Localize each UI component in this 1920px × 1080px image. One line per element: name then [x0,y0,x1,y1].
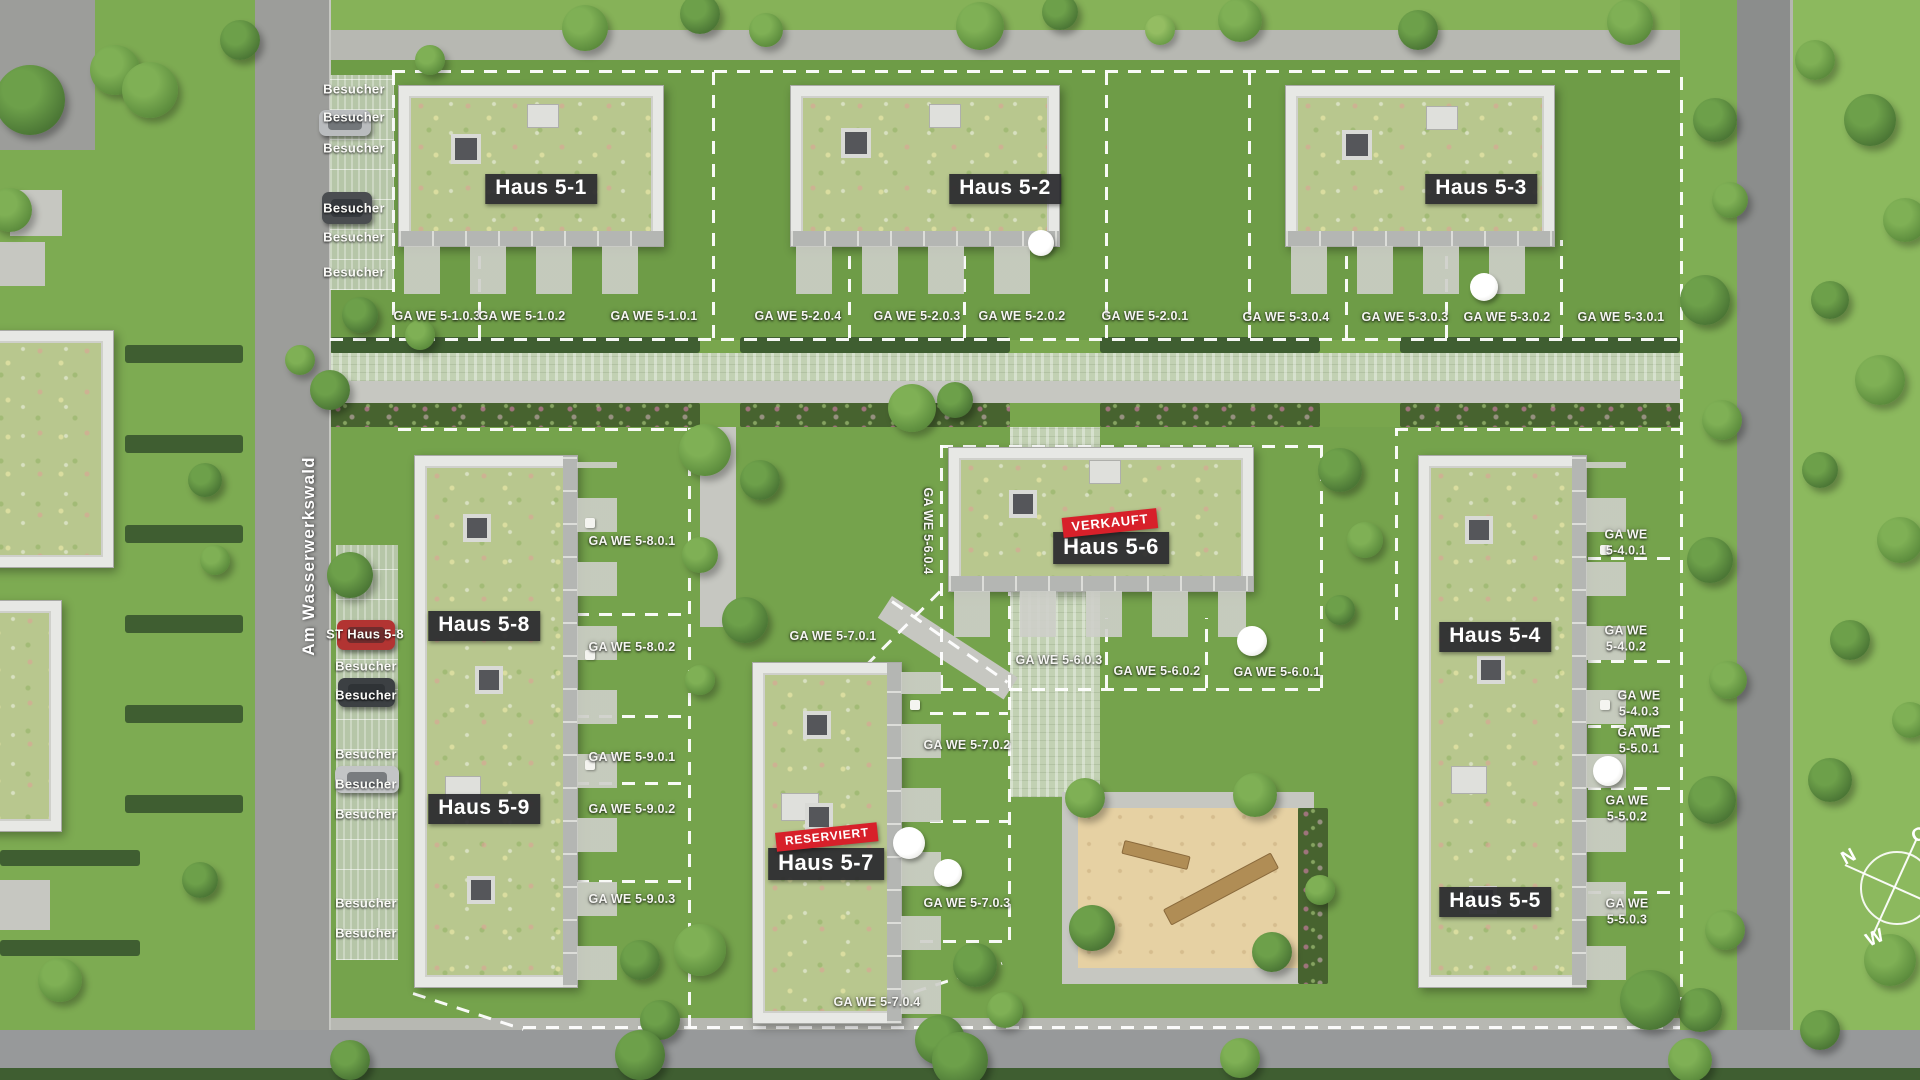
plot-label: GA WE 5-2.0.1 [1102,309,1189,325]
facade [563,456,577,987]
tree [1712,182,1748,218]
plot-label: GA WE 5-9.0.2 [589,802,676,818]
plot-label: GA WE 5-7.0.2 [924,738,1011,754]
top-sidewalk [330,30,1690,60]
tree [722,597,768,643]
visitor-parking-label: Besucher [323,110,385,125]
visitor-parking-label: Besucher [323,141,385,156]
visitor-parking-label: Besucher [335,688,397,703]
visitor-parking-label: Besucher [335,747,397,762]
roof-access [929,104,961,128]
mid-flowerbed [1400,403,1680,427]
patio-table [910,700,920,710]
visitor-parking-top [330,75,394,290]
green-roof [801,96,1049,236]
tree [562,5,608,51]
visitor-parking-label: Besucher [335,807,397,822]
facade [1572,456,1586,987]
playground-path [1062,792,1078,984]
skylight [1009,490,1037,518]
umbrella [1593,756,1623,786]
terraces-5-6 [954,591,1246,637]
tree [1705,910,1745,950]
tree [1844,94,1896,146]
tree [1693,98,1737,142]
tree [682,537,718,573]
building-haus-5-3[interactable] [1285,85,1555,247]
plot-label: GA WE 5-5.0.2 [1606,793,1649,824]
site-plan: GA WE 5-1.0.3GA WE 5-1.0.2GA WE 5-1.0.1G… [0,0,1920,1080]
roof-access [1089,460,1121,484]
roof-access [527,104,559,128]
plot-boundary [1680,70,1683,1010]
compass-n: N [1838,845,1860,870]
terraces-5-1 [404,246,656,294]
tree [1702,400,1742,440]
tree [1668,1038,1712,1080]
plot-boundary [523,1026,1680,1029]
facade [1286,231,1554,246]
plot-label: GA WE 5-9.0.3 [589,892,676,908]
plot-label: GA WE 5-5.0.3 [1606,896,1649,927]
house-badge[interactable]: Haus 5-1 [485,174,597,204]
tree [932,1032,988,1080]
plot-label: GA WE 5-3.0.3 [1362,310,1449,326]
patio-table [585,518,595,528]
plot-label: GA WE 5-6.0.4 [919,488,935,575]
tree [685,665,715,695]
tree [1811,281,1849,319]
compass-o: O [1908,822,1920,847]
tree [1688,776,1736,824]
tree [1620,970,1680,1030]
tree [415,45,445,75]
building-haus-5-2[interactable] [790,85,1060,247]
tree [1687,537,1733,583]
tree [674,924,726,976]
neighbour-hedge [125,525,243,543]
tree [1607,0,1653,45]
plot-label: GA WE 5-3.0.4 [1243,310,1330,326]
visitor-parking-label: Besucher [335,659,397,674]
plot-label: GA WE 5-1.0.1 [611,309,698,325]
compass: N W O [1828,812,1920,962]
neighbour-hedge [125,435,243,453]
tree [1892,702,1920,738]
tree [1233,773,1277,817]
tree [1325,595,1355,625]
neighbour-building [0,600,62,832]
tree [330,1040,370,1080]
green-roof [425,466,567,977]
plot-label: GA WE 5-1.0.2 [479,309,566,325]
tree [182,862,218,898]
plot-label: GA WE 5-5.0.1 [1618,725,1661,756]
street-name: Am Wasserwerkswald [299,456,319,656]
house-badge[interactable]: Haus 5-2 [949,174,1061,204]
mid-flowerbed [1100,403,1320,427]
tree [1680,275,1730,325]
skylight [1342,130,1372,160]
neighbour-building [0,330,114,568]
tree [1800,1010,1840,1050]
tree [1709,661,1747,699]
tree [200,545,230,575]
tree [987,992,1023,1028]
neighbour-patio [0,242,45,286]
mid-paver-road [330,353,1737,381]
tree [285,345,315,375]
plot-boundary [930,820,1008,823]
plot-label: GA WE 5-7.0.4 [834,995,921,1011]
facade [949,576,1253,591]
facade [399,231,663,246]
tree [1808,758,1852,802]
plot-label: GA WE 5-3.0.2 [1464,310,1551,326]
terraces-5-2 [796,246,1052,294]
tree [679,424,731,476]
tree [1398,10,1438,50]
tree [220,20,260,60]
umbrella [934,859,962,887]
tree [615,1030,665,1080]
building-haus-5-1[interactable] [398,85,664,247]
tree [956,2,1004,50]
terraces-5-3 [1291,246,1547,294]
visitor-parking-label: Besucher [335,926,397,941]
plot-label: GA WE 5-3.0.1 [1578,310,1665,326]
top-grass-strip [330,0,1700,30]
neighbour-hedge [0,850,140,866]
visitor-parking-label: Besucher [323,265,385,280]
tree [38,958,82,1002]
house-badge[interactable]: Haus 5-5 [1439,887,1551,917]
plot-label: GA WE 5-2.0.3 [874,309,961,325]
tree [1318,448,1362,492]
plot-boundary [1560,240,1563,338]
plot-label: GA WE 5-4.0.2 [1605,623,1648,654]
visitor-parking-label: Besucher [323,82,385,97]
tree [1795,40,1835,80]
neighbour-hedge [0,940,140,956]
tree [1220,1038,1260,1078]
plot-label: GA WE 5-8.0.2 [589,640,676,656]
plot-label: GA WE 5-6.0.1 [1234,665,1321,681]
plot-label: GA WE 5-6.0.2 [1114,664,1201,680]
umbrella [893,827,925,859]
umbrella [1237,626,1267,656]
right-green-strip [1680,0,1737,1030]
tree [1069,905,1115,951]
plot-label: GA WE 5-2.0.4 [755,309,842,325]
neighbour-patio [0,880,50,930]
plot-boundary [940,445,943,688]
green-roof [1296,96,1544,236]
plot-boundary [1248,70,1251,338]
skylight [451,134,481,164]
tree [953,943,997,987]
plot-label: GA WE 5-4.0.3 [1618,688,1661,719]
plot-boundary [1105,70,1108,338]
roof-access [1451,766,1487,794]
tree [1802,452,1838,488]
skylight [475,666,503,694]
tree [620,940,660,980]
plot-boundary [930,712,1008,715]
tree [1883,198,1920,242]
plot-label: GA WE 5-7.0.3 [924,896,1011,912]
tree [1678,988,1722,1032]
plot-boundary [392,70,1680,73]
tree [888,384,936,432]
tree [1855,355,1905,405]
neighbour-hedge [125,705,243,723]
plot-label: GA WE 5-9.0.1 [589,750,676,766]
compass-w: W [1862,925,1887,952]
st-parking-label: ST Haus 5-8 [326,627,404,642]
tree [188,463,222,497]
plot-boundary [712,70,715,338]
tree [937,382,973,418]
neighbour-hedge [125,795,243,813]
facade [791,231,1059,246]
umbrella [1028,230,1054,256]
right-street [1737,0,1790,1030]
skylight [463,514,491,542]
plot-boundary [398,428,688,431]
house-badge[interactable]: Haus 5-8 [428,611,540,641]
visitor-parking-label: Besucher [335,896,397,911]
plot-boundary [330,338,1680,341]
plot-label: GA WE 5-6.0.3 [1016,653,1103,669]
tree [1218,0,1262,42]
plot-label: GA WE 5-1.0.3 [394,309,481,325]
plot-label: GA WE 5-8.0.1 [589,534,676,550]
roof-access [1426,106,1458,130]
visitor-parking-label: Besucher [323,201,385,216]
plot-boundary [940,688,1320,691]
building-haus-5-8-5-9[interactable] [414,455,578,988]
plot-label: GA WE 5-7.0.1 [790,629,877,645]
tree [342,297,378,333]
house-badge[interactable]: Haus 5-4 [1439,622,1551,652]
tree [122,62,178,118]
visitor-parking-label: Besucher [335,777,397,792]
tree [1065,778,1105,818]
tree [1830,620,1870,660]
tree [1305,875,1335,905]
plot-label: GA WE 5-4.0.1 [1605,527,1648,558]
visitor-parking-label: Besucher [323,230,385,245]
neighbour-hedge [125,615,243,633]
plot-boundary [392,70,395,338]
patio-table [1600,700,1610,710]
skylight [1477,656,1505,684]
tree [1347,522,1383,558]
skylight [841,128,871,158]
skylight [1465,516,1493,544]
tree [327,552,373,598]
plot-boundary [1395,428,1680,431]
tree [1252,932,1292,972]
umbrella [1470,273,1498,301]
tree [310,370,350,410]
skylight [803,711,831,739]
tree [1877,517,1920,563]
house-badge[interactable]: Haus 5-3 [1425,174,1537,204]
house-badge[interactable]: Haus 5-7 [768,848,884,880]
mid-walkway [255,381,1737,403]
house-badge[interactable]: Haus 5-9 [428,794,540,824]
plot-label: GA WE 5-2.0.2 [979,309,1066,325]
skylight [467,876,495,904]
plot-boundary [1395,428,1398,620]
tree [749,13,783,47]
neighbour-hedge [125,345,243,363]
tree [740,460,780,500]
tree [1145,15,1175,45]
mid-flowerbed [330,403,700,427]
